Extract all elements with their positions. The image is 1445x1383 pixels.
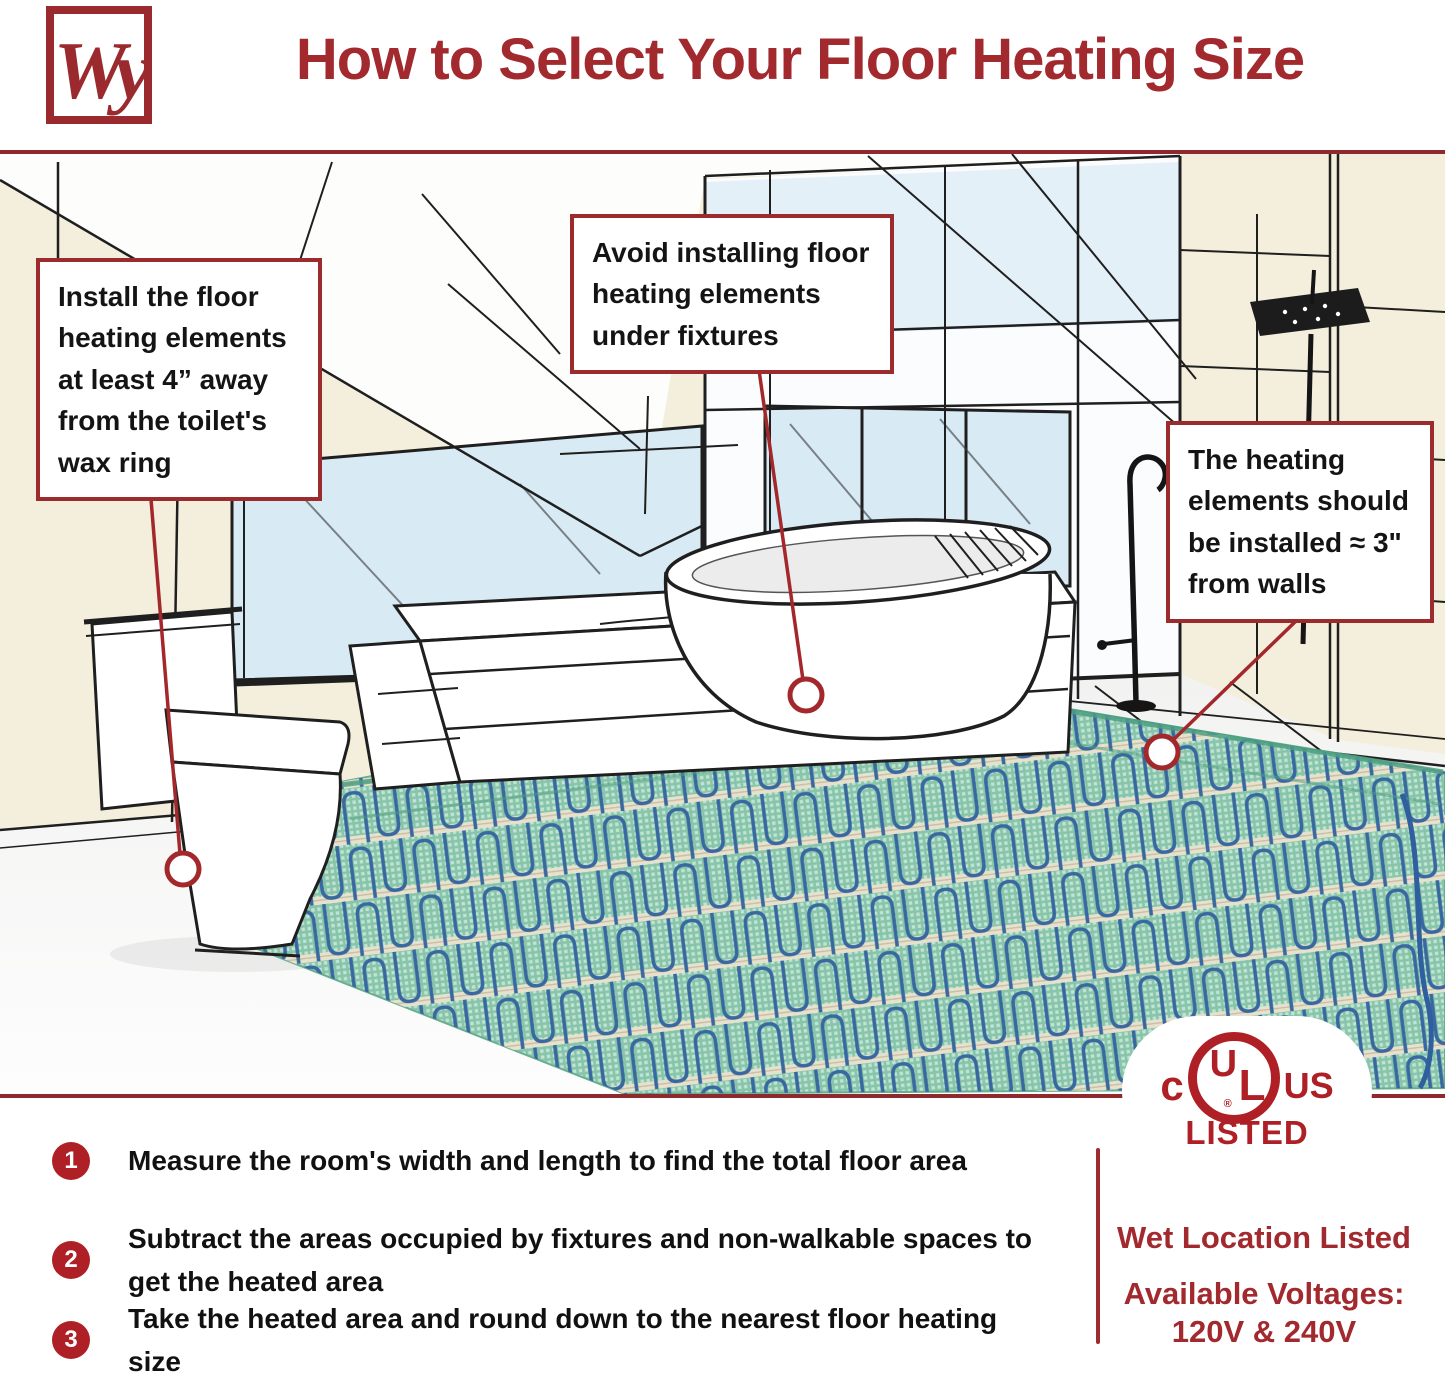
voltages-label: Available Voltages: <box>1108 1276 1420 1312</box>
registered-symbol: ® <box>1224 1098 1232 1110</box>
voltages-value: 120V & 240V <box>1108 1314 1420 1350</box>
step-2: 2 Subtract the areas occupied by fixture… <box>52 1216 1082 1304</box>
brand-logo: Wy <box>46 6 152 124</box>
ul-listed-mark: c U L ® US <box>1128 1032 1366 1124</box>
step-3: 3 Take the heated area and round down to… <box>52 1320 1082 1360</box>
callout-avoid-fixtures: Avoid installing floor heating elements … <box>570 214 894 374</box>
callout-distance-from-walls: The heating elements should be installed… <box>1166 421 1434 623</box>
step-1: 1 Measure the room's width and length to… <box>52 1142 1082 1180</box>
ul-suffix: US <box>1284 1065 1334 1107</box>
step-1-badge: 1 <box>52 1142 90 1180</box>
ul-letter-l: L <box>1239 1061 1266 1111</box>
wall-marker-icon <box>1146 736 1178 768</box>
step-2-text: Subtract the areas occupied by fixtures … <box>128 1217 1048 1304</box>
ul-listed-label: LISTED <box>1128 1114 1366 1152</box>
callout-toilet-wax-ring: Install the floor heating elements at le… <box>36 258 322 501</box>
wet-location-label: Wet Location Listed <box>1108 1220 1420 1256</box>
ul-ring-icon: U L ® <box>1188 1032 1280 1124</box>
brand-logo-text: Wy <box>54 30 145 112</box>
section-divider <box>1096 1148 1100 1344</box>
ul-prefix: c <box>1160 1062 1183 1110</box>
step-2-badge: 2 <box>52 1241 90 1279</box>
ul-letter-u: U <box>1210 1043 1237 1086</box>
step-3-text: Take the heated area and round down to t… <box>128 1297 1048 1383</box>
step-1-text: Measure the room's width and length to f… <box>128 1139 967 1182</box>
instruction-steps: 1 Measure the room's width and length to… <box>52 1142 1082 1360</box>
page-title: How to Select Your Floor Heating Size <box>170 26 1430 93</box>
step-3-badge: 3 <box>52 1321 90 1359</box>
tub-marker-icon <box>790 679 822 711</box>
toilet-marker-icon <box>167 853 199 885</box>
